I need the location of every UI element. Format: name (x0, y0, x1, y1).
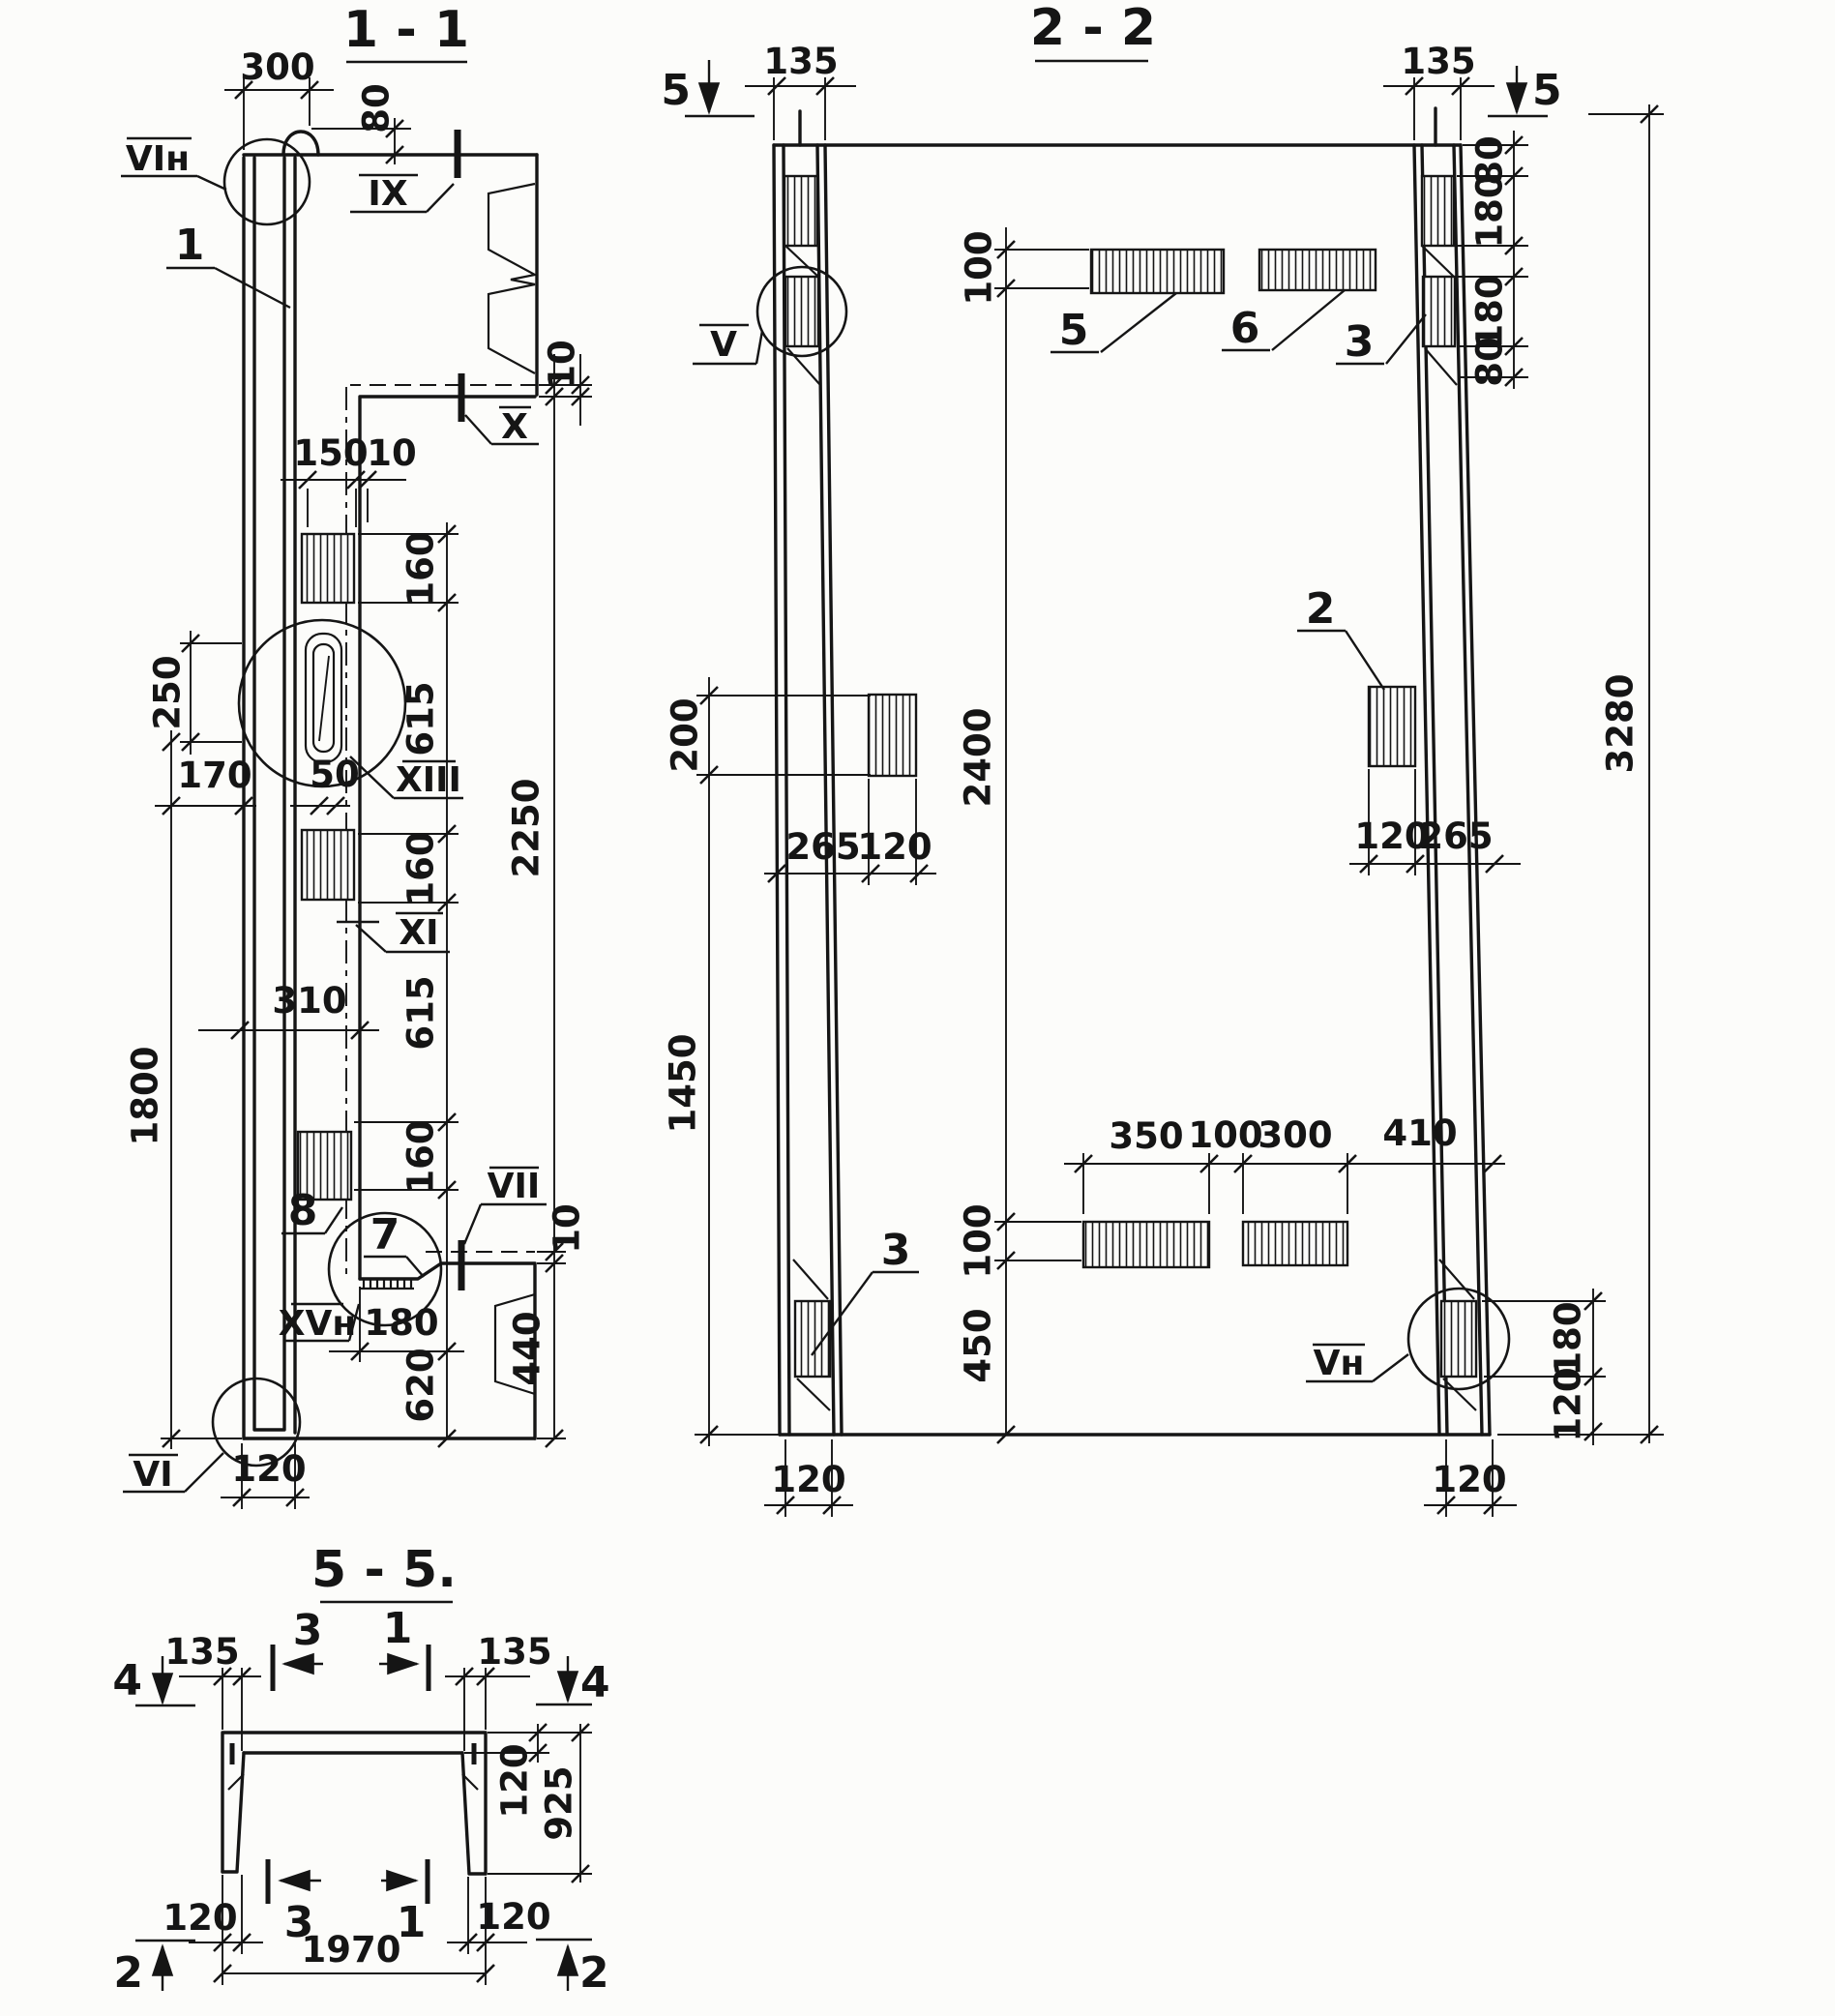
dim-300: 300 (240, 46, 314, 88)
dim-120-bot: 120 (1548, 1367, 1589, 1441)
dim-100-bot: 100 (958, 1203, 999, 1278)
dim-1970: 1970 (302, 1929, 401, 1971)
weld-plate-hatch (1259, 250, 1376, 290)
dim-615-1: 615 (400, 681, 442, 756)
weld-plate-hatch (785, 277, 818, 346)
dim-150: 150 (293, 432, 368, 474)
dim-1450: 1450 (663, 1034, 704, 1134)
weld-label-Vn: Vн (1314, 1344, 1365, 1383)
weld-plate-hatch (1369, 687, 1415, 766)
cut-label-3-top: 3 (293, 1606, 323, 1655)
section-1-1: 1 - 1 (121, 1, 592, 1509)
dim-180: 180 (364, 1302, 438, 1344)
pos-label-8: 8 (288, 1186, 318, 1235)
dim-265-right: 265 (1418, 815, 1493, 857)
dim-135-left: 135 (164, 1631, 239, 1673)
channel-outline-5-5 (222, 1733, 486, 1874)
section-2-2-title: 2 - 2 (1030, 0, 1156, 57)
dim-620: 620 (400, 1348, 442, 1422)
weld-plate-hatch (869, 695, 916, 776)
weld-label-XVn: XVн (279, 1304, 357, 1344)
dim-265-left: 265 (785, 826, 860, 868)
weld-label-IX: IX (368, 174, 407, 214)
pos-label-1: 1 (175, 221, 205, 270)
section-5-5-title: 5 - 5. (311, 1541, 457, 1599)
cut-label-5: 5 (1532, 66, 1562, 115)
cut-marker-5-right: 5 (1488, 66, 1562, 116)
dim-160-1: 160 (400, 531, 442, 606)
dim-10-mid: 10 (367, 432, 417, 474)
pos-label-7: 7 (370, 1210, 400, 1260)
technical-drawing: 1 - 1 (0, 0, 1835, 2016)
section-5-5: 5 - 5. 3 1 3 1 4 4 2 (112, 1541, 609, 1998)
dim-2250: 2250 (506, 779, 548, 878)
cut-label-4-left: 4 (112, 1656, 142, 1705)
keyway-top (488, 184, 535, 373)
drawing-sheet: 1 - 1 (0, 0, 1835, 2016)
section-1-1-title: 1 - 1 (343, 1, 469, 59)
weld-label-VI: VI (133, 1455, 172, 1495)
pos-label-3-bot: 3 (881, 1226, 911, 1275)
dim-120-bot-left: 120 (771, 1459, 845, 1500)
dim-2400: 2400 (958, 708, 999, 808)
dim-120-bot-left: 120 (163, 1897, 237, 1939)
dim-925: 925 (539, 1765, 580, 1840)
dim-135-right: 135 (1401, 41, 1475, 82)
dim-170: 170 (177, 755, 252, 796)
weld-plate-hatch (1083, 1222, 1209, 1267)
weld-plate-hatch (784, 176, 817, 246)
weld-plate-hatch (302, 830, 354, 900)
dim-350: 350 (1109, 1115, 1183, 1157)
dim-410: 410 (1382, 1112, 1457, 1154)
dim-250: 250 (147, 655, 189, 729)
dim-200: 200 (665, 697, 706, 772)
dim-615-2: 615 (400, 975, 442, 1050)
weld-plate-hatch (1441, 1301, 1476, 1377)
dim-160-3: 160 (400, 1119, 442, 1194)
dim-120: 120 (231, 1448, 306, 1490)
dim-120-bot-right: 120 (1432, 1459, 1506, 1500)
dim-100-row: 100 (1188, 1114, 1262, 1156)
pos-label-2: 2 (1306, 584, 1336, 634)
weld-plate-hatch (1423, 277, 1455, 346)
weld-label-XI: XI (399, 913, 438, 953)
pos-label-6: 6 (1230, 304, 1260, 353)
dim-120-bot-right: 120 (476, 1896, 550, 1938)
dim-180-1: 180 (1469, 173, 1511, 248)
dim-10-bot: 10 (547, 1203, 588, 1254)
dim-1800: 1800 (125, 1047, 166, 1146)
dim-10-top: 10 (542, 340, 583, 390)
pos-label-3-top: 3 (1345, 317, 1375, 367)
cut-label-2-right: 2 (579, 1948, 609, 1998)
dim-180-bot: 180 (1548, 1301, 1589, 1376)
dim-80-2: 80 (1469, 337, 1511, 387)
rebar-ticks (800, 108, 1435, 145)
weld-plate-hatch (1091, 250, 1224, 293)
dim-80: 80 (356, 83, 398, 133)
weld-label-VII: VII (488, 1167, 541, 1206)
dim-3280: 3280 (1600, 674, 1642, 774)
weld-plate-hatch (302, 534, 354, 603)
pos-label-5: 5 (1059, 306, 1089, 355)
cut-label-1-top: 1 (383, 1604, 413, 1653)
dim-160-2: 160 (400, 831, 442, 905)
weld-label-V: V (710, 325, 737, 365)
section-2-2: 2 - 2 5 (661, 0, 1664, 1517)
dim-135-right: 135 (477, 1631, 551, 1673)
detail-callout-circle-VIn (224, 139, 310, 224)
dim-310: 310 (272, 980, 346, 1022)
dim-120-slab: 120 (494, 1743, 536, 1818)
weld-label-VIn: VIн (126, 139, 190, 179)
weld-plate-hatch (1422, 176, 1454, 246)
cut-label-5: 5 (661, 66, 691, 115)
weld-label-X: X (501, 407, 528, 447)
dim-120-left: 120 (857, 826, 932, 868)
weld-label-XIII: XIII (396, 760, 461, 800)
dim-135-left: 135 (763, 41, 838, 82)
cut-label-4-right: 4 (580, 1658, 610, 1707)
cut-label-2-left: 2 (113, 1948, 143, 1998)
dim-440: 440 (507, 1311, 548, 1385)
lifting-loop (283, 132, 318, 155)
dim-450: 450 (958, 1308, 999, 1382)
cut-marker-5-left: 5 (661, 60, 755, 116)
dim-100-top: 100 (959, 230, 1000, 305)
weld-plate-hatch (1243, 1222, 1347, 1265)
dim-300: 300 (1258, 1114, 1332, 1156)
